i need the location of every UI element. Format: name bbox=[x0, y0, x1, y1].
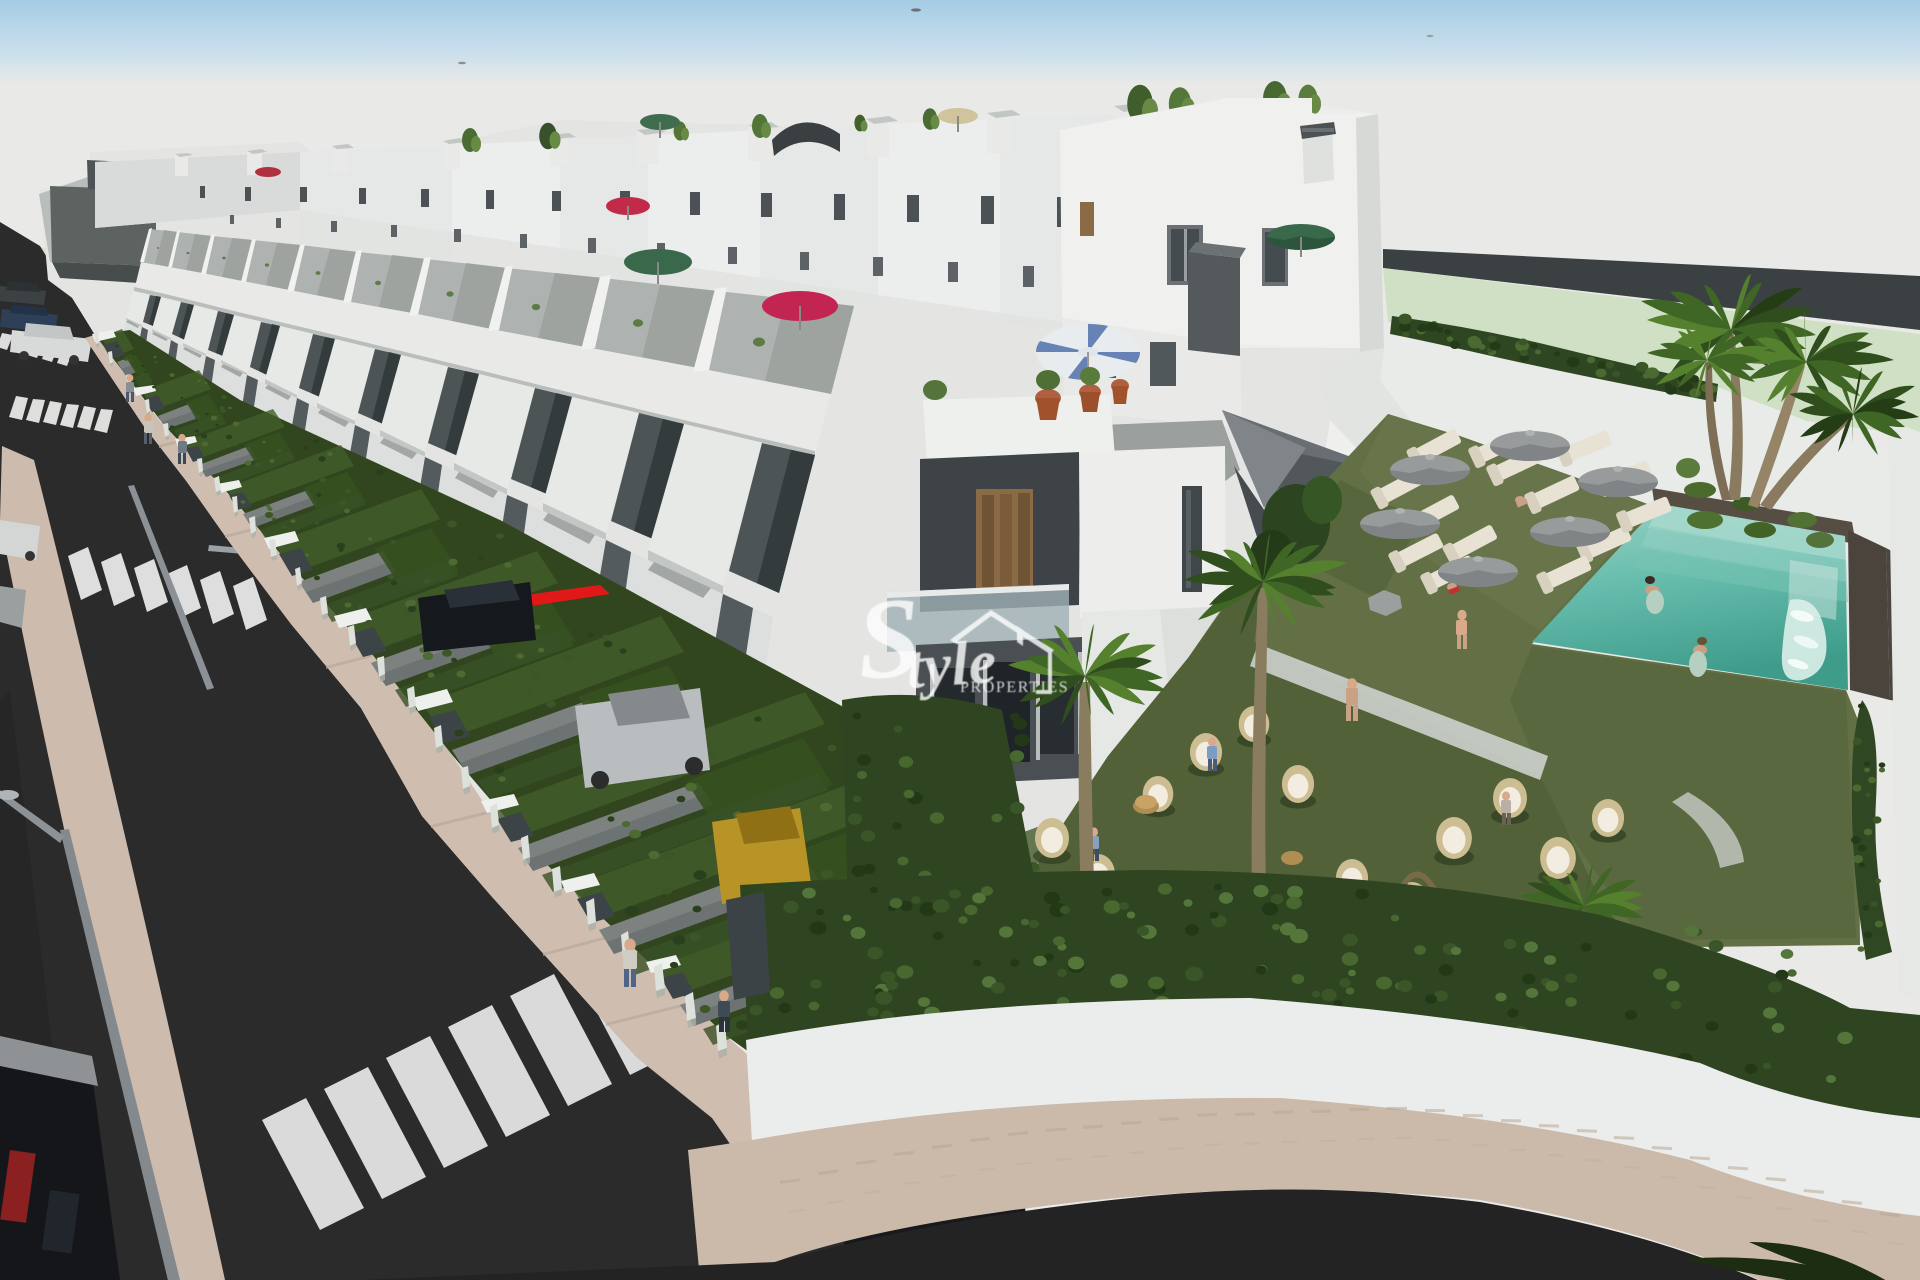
svg-text:PROPERTIES: PROPERTIES bbox=[960, 679, 1069, 696]
